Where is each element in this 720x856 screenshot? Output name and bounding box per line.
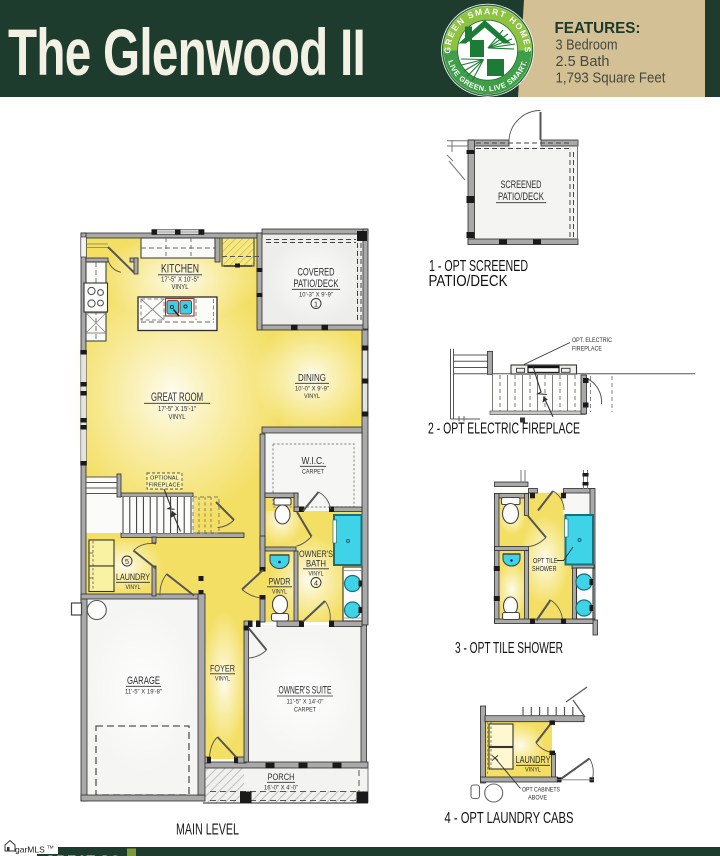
svg-text:PATIO/DECK: PATIO/DECK [429,273,509,290]
svg-text:KITCHEN: KITCHEN [161,264,199,276]
svg-text:2 - OPT ELECTRIC FIREPLACE: 2 - OPT ELECTRIC FIREPLACE [428,421,580,438]
svg-text:LAUNDRY: LAUNDRY [516,755,551,766]
svg-text:PATIO/DECK: PATIO/DECK [294,278,339,290]
svg-text:VINYL: VINYL [215,677,231,683]
svg-text:OPT CABINETS: OPT CABINETS [522,787,560,794]
svg-text:CARPET: CARPET [294,707,316,714]
svg-text:ABOVE: ABOVE [528,795,547,802]
svg-text:PATIO/DECK: PATIO/DECK [498,191,544,203]
svg-text:OPT TILE: OPT TILE [533,558,558,565]
svg-text:TM: TM [47,845,54,850]
svg-text:VINYL: VINYL [525,768,542,774]
svg-text:VINYL: VINYL [126,585,142,591]
svg-text:GARAGE: GARAGE [127,675,160,687]
svg-text:11'-5" X 19'-8": 11'-5" X 19'-8" [125,689,163,696]
svg-text:SCREENED: SCREENED [501,179,542,191]
svg-text:The Glenwood II: The Glenwood II [8,17,365,90]
svg-text:OPTIONAL: OPTIONAL [150,476,179,482]
svg-text:4 - OPT LAUNDRY CABS: 4 - OPT LAUNDRY CABS [445,810,574,827]
svg-text:VINYL: VINYL [304,393,320,400]
svg-text:LAUNDRY: LAUNDRY [116,572,150,583]
svg-text:FIREPLACE: FIREPLACE [572,346,602,353]
svg-text:4: 4 [314,578,318,587]
svg-text:OWNER'S SUITE: OWNER'S SUITE [279,685,332,697]
svg-text:16'-0" X 4'-0": 16'-0" X 4'-0" [264,785,299,792]
svg-text:PORCH: PORCH [268,772,295,783]
svg-text:3 - OPT TILE SHOWER: 3 - OPT TILE SHOWER [455,640,563,657]
svg-text:10'-3" X 9'-9": 10'-3" X 9'-9" [299,292,334,299]
svg-text:17'-5" X 10'-5": 17'-5" X 10'-5" [161,277,199,284]
svg-text:FEATURES:: FEATURES: [555,20,641,37]
svg-text:FIREPLACE: FIREPLACE [149,483,181,489]
svg-text:11'-5" X 14'-0": 11'-5" X 14'-0" [287,699,325,706]
svg-text:3 Bedroom: 3 Bedroom [556,37,618,54]
svg-text:W.I.C.: W.I.C. [302,455,325,467]
svg-text:VINYL: VINYL [169,414,186,421]
svg-text:VINYL: VINYL [309,572,325,578]
svg-text:MAIN LEVEL: MAIN LEVEL [176,822,239,839]
svg-text:VINYL: VINYL [172,284,189,291]
svg-text:BATH: BATH [306,559,326,570]
svg-text:1,793 Square Feet: 1,793 Square Feet [556,70,667,87]
svg-text:PWDR: PWDR [269,577,291,588]
svg-text:garMLS: garMLS [15,845,45,855]
svg-text:5: 5 [125,557,129,566]
svg-text:OPT. ELECTRIC: OPT. ELECTRIC [572,337,612,344]
svg-text:COVERED: COVERED [298,267,335,279]
svg-text:DINING: DINING [298,373,326,384]
svg-text:VINYL: VINYL [272,590,288,596]
svg-text:SHOWER: SHOWER [532,566,557,573]
svg-text:17'-5" X 15'-1": 17'-5" X 15'-1" [158,406,196,413]
svg-text:2.5 Bath: 2.5 Bath [556,53,610,70]
svg-text:1: 1 [314,299,318,308]
svg-text:CARPET: CARPET [302,469,324,476]
svg-text:GREAT ROOM: GREAT ROOM [151,392,203,404]
svg-text:10'-0" X 9'-9": 10'-0" X 9'-9" [295,386,330,393]
svg-text:FOYER: FOYER [210,664,235,675]
